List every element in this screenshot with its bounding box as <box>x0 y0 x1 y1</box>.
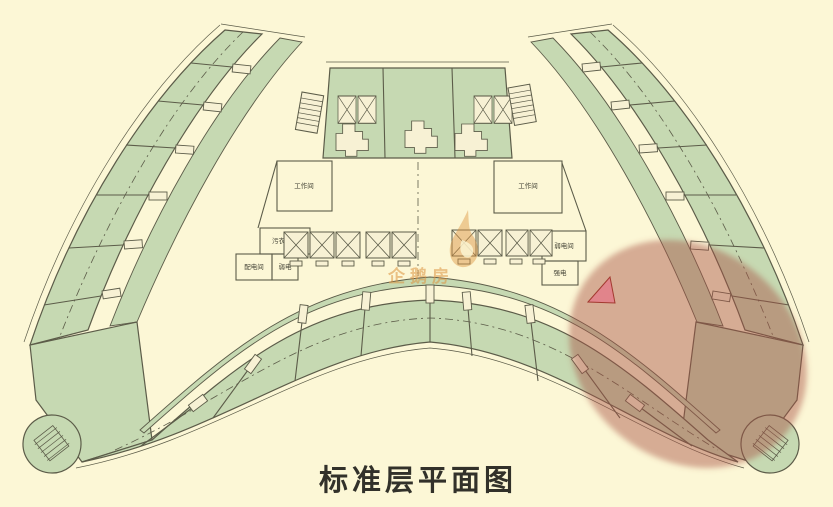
floor-plan-svg: 工作间 工作间 污衣存放 配电间 弱电 弱电间 强电 <box>0 0 833 507</box>
label-strong-current: 强电 <box>554 268 568 277</box>
label-power-distribution: 配电间 <box>244 262 264 271</box>
label-weak-current-room: 弱电间 <box>554 241 574 250</box>
floor-plan-image: 工作间 工作间 污衣存放 配电间 弱电 弱电间 强电 <box>0 0 833 507</box>
plan-title: 标准层平面图 <box>319 463 517 497</box>
watermark-text: 企鹅房 <box>387 266 454 287</box>
label-workroom-left: 工作间 <box>294 181 314 190</box>
label-workroom-right: 工作间 <box>518 181 538 190</box>
